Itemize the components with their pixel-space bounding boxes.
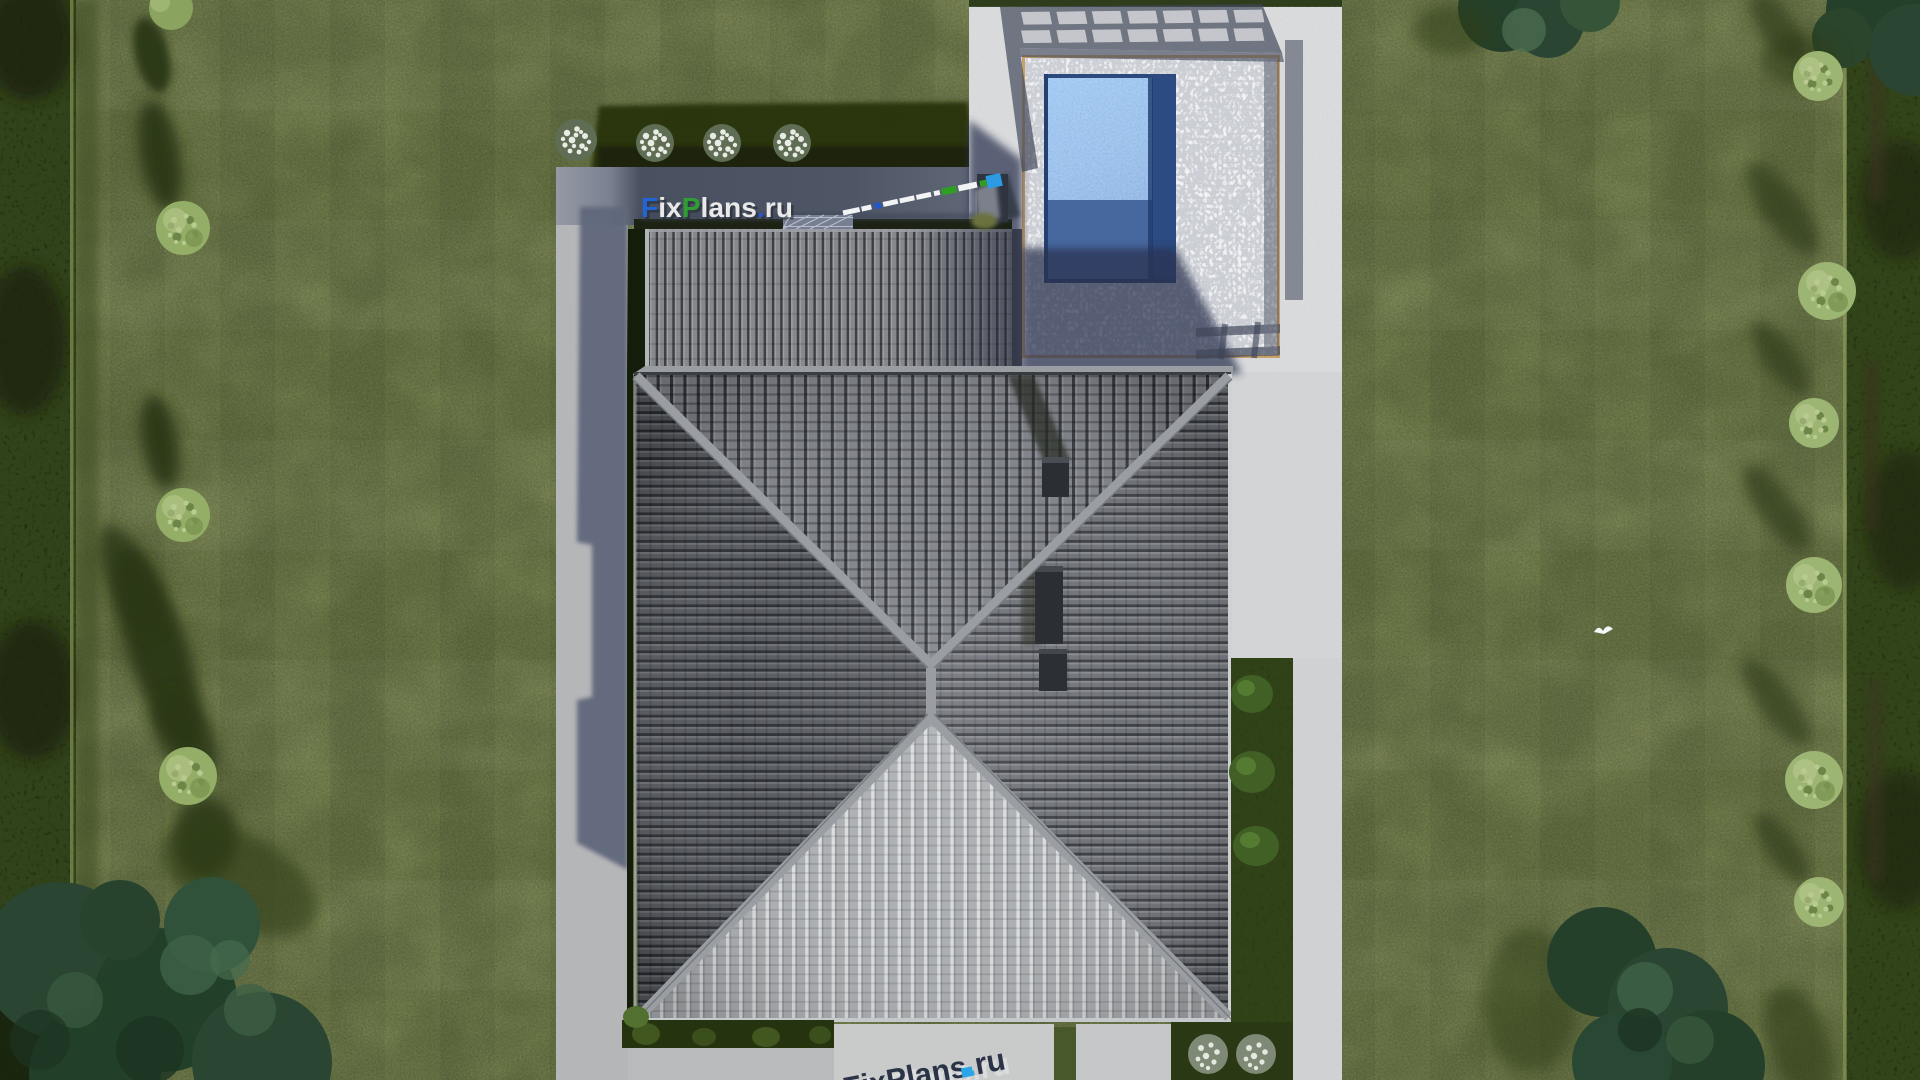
- svg-text:FixPlans.ru: FixPlans.ru: [641, 191, 793, 223]
